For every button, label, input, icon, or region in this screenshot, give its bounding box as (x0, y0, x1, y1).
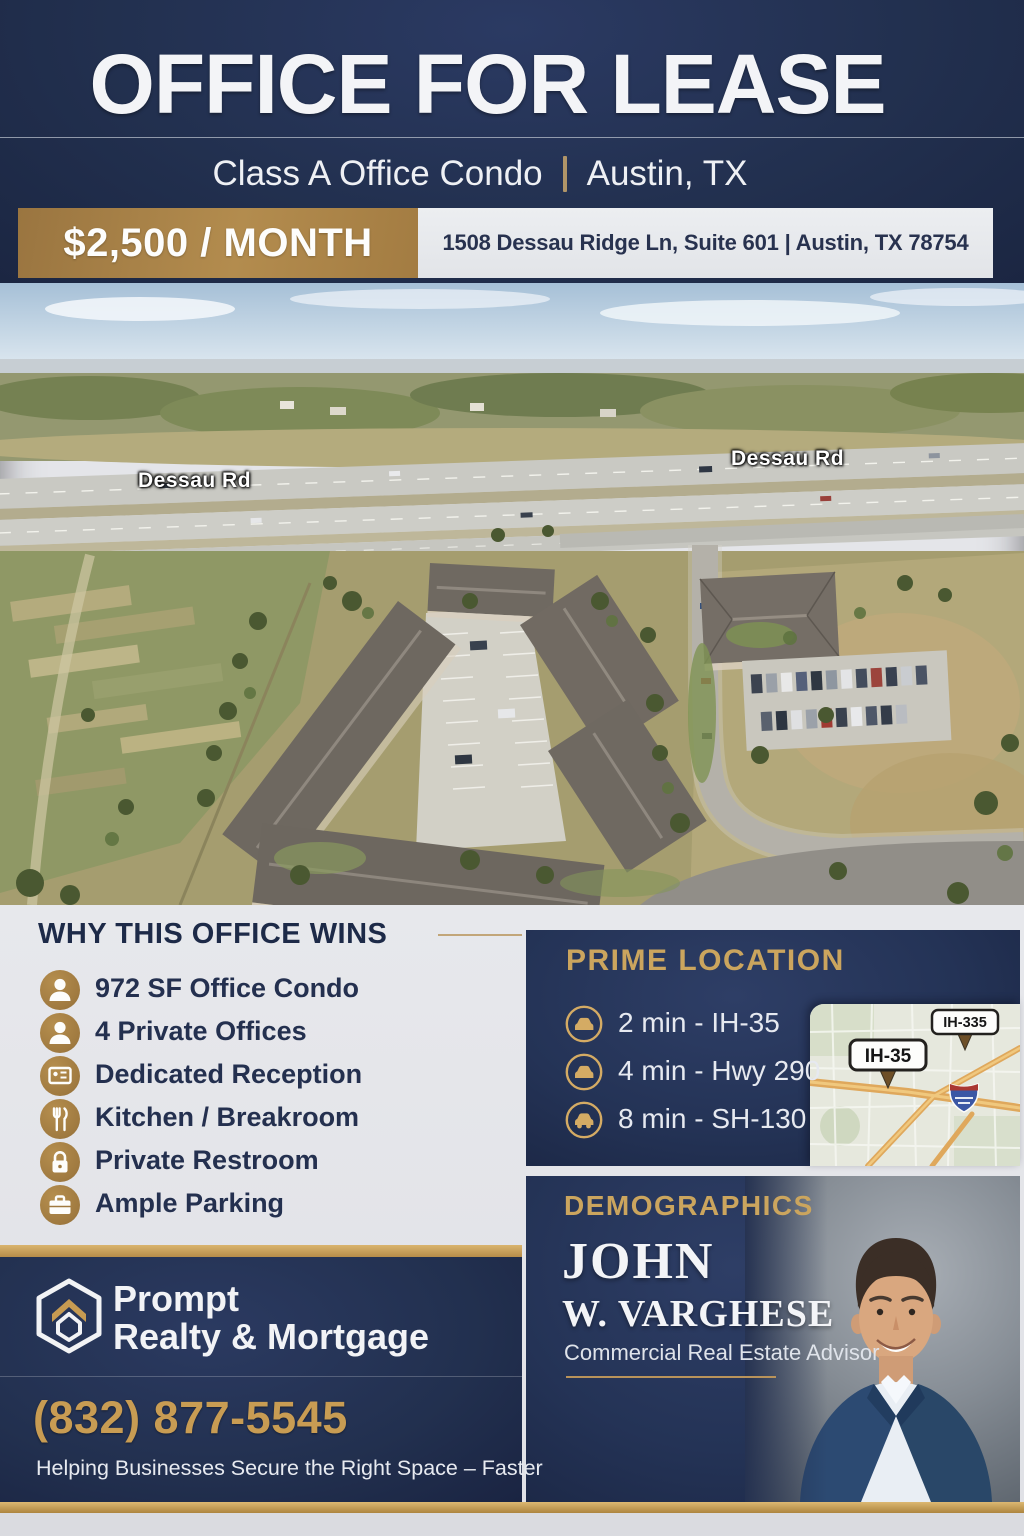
reception-icon (40, 1056, 80, 1096)
agent-title: Commercial Real Estate Advisor (564, 1340, 879, 1366)
agent-gold-line (566, 1376, 776, 1378)
feature-label: 972 SF Office Condo (95, 973, 359, 1004)
feature-item: Kitchen / Breakroom (40, 1099, 510, 1139)
flyer: OFFICE FOR LEASE Class A Office CondoAus… (0, 0, 1024, 1536)
feature-label: Private Restroom (95, 1145, 319, 1176)
subtitle-separator (563, 156, 567, 192)
address-bar: 1508 Dessau Ridge Ln, Suite 601 | Austin… (418, 208, 993, 278)
brand-divider (0, 1376, 522, 1377)
footer-strip (0, 1513, 1024, 1536)
phone-number: (832) 877-5545 (33, 1392, 348, 1444)
features-heading-line (438, 934, 522, 936)
svg-text:IH-35: IH-35 (865, 1046, 912, 1067)
footer-gold-bar (0, 1502, 1024, 1513)
road-label-right: Dessau Rd (731, 447, 844, 471)
price-badge: $2,500 / MONTH (18, 208, 418, 278)
agent-first-name: JOHN (562, 1232, 714, 1291)
feature-item: 4 Private Offices (40, 1013, 510, 1053)
header-divider (0, 137, 1024, 138)
feature-label: Kitchen / Breakroom (95, 1102, 359, 1133)
feature-item: 972 SF Office Condo (40, 970, 510, 1010)
prime-location-heading: PRIME LOCATION (566, 944, 845, 978)
brand-name-line1: Prompt (113, 1278, 239, 1320)
svg-text:IH-335: IH-335 (943, 1015, 987, 1031)
subtitle: Class A Office CondoAustin, TX (0, 150, 960, 198)
header: OFFICE FOR LEASE Class A Office CondoAus… (0, 0, 1024, 283)
car-icon (564, 1100, 604, 1140)
feature-item: Private Restroom (40, 1142, 510, 1182)
location-item: 2 min - IH-35 (564, 1004, 824, 1044)
location-label: 8 min - SH-130 (618, 1103, 806, 1135)
agent-photo (745, 1176, 1020, 1502)
feature-label: Ample Parking (95, 1188, 284, 1219)
brand-name-line2: Realty & Mortgage (113, 1316, 429, 1358)
features-heading: WHY THIS OFFICE WINS (38, 918, 387, 951)
kitchen-icon (40, 1099, 80, 1139)
demographics-heading: DEMOGRAPHICS (564, 1190, 814, 1222)
feature-item: Dedicated Reception (40, 1056, 510, 1096)
brand-logo-icon (33, 1277, 105, 1355)
location-item: 8 min - SH-130 (564, 1100, 824, 1140)
location-label: 2 min - IH-35 (618, 1007, 780, 1039)
restroom-icon (40, 1142, 80, 1182)
agent-last-name: W. VARGHESE (562, 1292, 834, 1336)
road-label-left: Dessau Rd (138, 469, 251, 493)
parking-icon (40, 1185, 80, 1225)
person-icon (40, 970, 80, 1010)
subtitle-left: Class A Office Condo (213, 154, 543, 193)
location-label: 4 min - Hwy 290 (618, 1055, 820, 1087)
gold-divider-bar (0, 1245, 522, 1257)
page-title: OFFICE FOR LEASE (0, 36, 975, 132)
feature-label: Dedicated Reception (95, 1059, 362, 1090)
aerial-photo: Dessau Rd Dessau Rd (0, 283, 1024, 905)
brand-tagline: Helping Businesses Secure the Right Spac… (36, 1456, 543, 1481)
feature-label: 4 Private Offices (95, 1016, 307, 1047)
car-icon (564, 1004, 604, 1044)
feature-item: Ample Parking (40, 1185, 510, 1225)
subtitle-right: Austin, TX (587, 154, 748, 193)
person-icon (40, 1013, 80, 1053)
car-icon (564, 1052, 604, 1092)
location-map: IH-35 IH-335 (810, 1004, 1020, 1166)
location-item: 4 min - Hwy 290 (564, 1052, 824, 1092)
aerial-photo-scene (0, 283, 1024, 905)
